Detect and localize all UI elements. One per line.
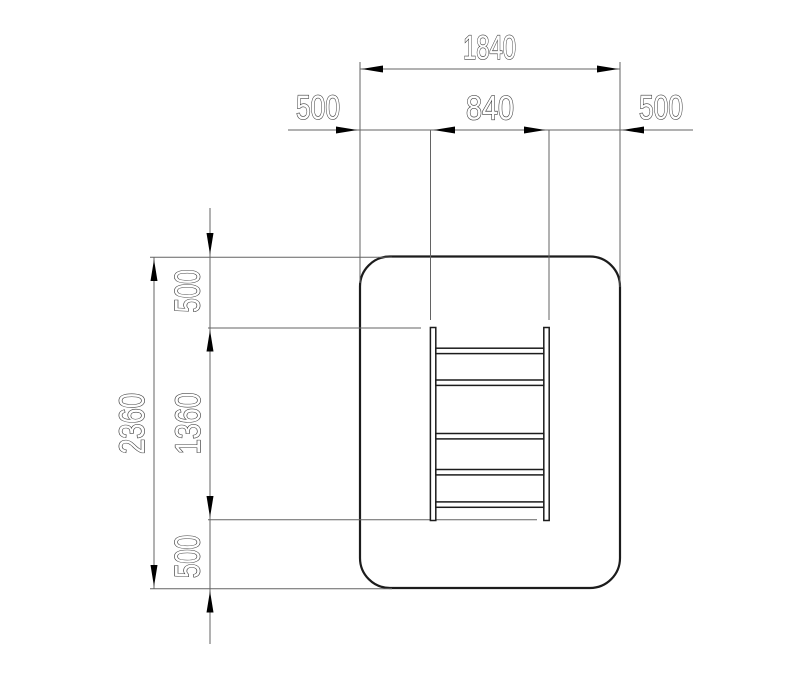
svg-text:840: 840	[466, 90, 514, 128]
svg-text:1360: 1360	[169, 393, 208, 455]
svg-text:500: 500	[169, 535, 208, 578]
svg-text:2360: 2360	[113, 393, 152, 454]
svg-text:500: 500	[169, 270, 208, 313]
svg-text:500: 500	[296, 89, 340, 127]
svg-text:1840: 1840	[463, 29, 516, 67]
svg-text:500: 500	[639, 89, 683, 127]
